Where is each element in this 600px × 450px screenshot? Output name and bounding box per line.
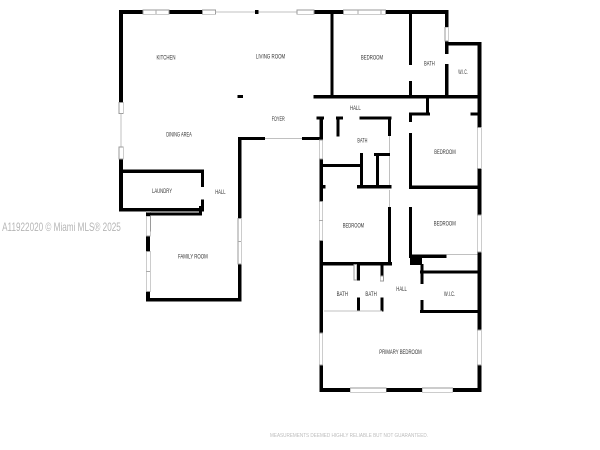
svg-text:W.I.C.: W.I.C.: [458, 69, 468, 76]
svg-text:BEDROOM: BEDROOM: [434, 149, 455, 156]
svg-text:BATH: BATH: [365, 291, 377, 298]
svg-text:PRIMARY BEDROOM: PRIMARY BEDROOM: [379, 349, 421, 356]
svg-text:BEDROOM: BEDROOM: [434, 221, 456, 228]
svg-text:W.I.C.: W.I.C.: [444, 291, 455, 298]
svg-text:FOYER: FOYER: [272, 116, 285, 123]
svg-text:FAMILY ROOM: FAMILY ROOM: [178, 253, 208, 260]
svg-text:BATH: BATH: [337, 291, 349, 298]
svg-text:HALL: HALL: [396, 286, 407, 293]
svg-text:HALL: HALL: [215, 189, 226, 196]
svg-text:LIVING ROOM: LIVING ROOM: [256, 54, 285, 61]
svg-text:BATH: BATH: [424, 61, 435, 68]
svg-text:BATH: BATH: [357, 138, 367, 145]
svg-text:BEDROOM: BEDROOM: [361, 55, 383, 62]
svg-text:MEASUREMENTS DEEMED HIGHLY REL: MEASUREMENTS DEEMED HIGHLY RELIABLE BUT …: [270, 433, 428, 439]
svg-text:KITCHEN: KITCHEN: [157, 55, 176, 62]
svg-text:A11922020 © Miami MLS® 2025: A11922020 © Miami MLS® 2025: [2, 220, 121, 234]
svg-text:HALL: HALL: [350, 105, 361, 112]
svg-text:BEDROOM: BEDROOM: [343, 222, 364, 229]
svg-text:DINING AREA: DINING AREA: [166, 132, 192, 139]
svg-text:LAUNDRY: LAUNDRY: [152, 188, 173, 195]
